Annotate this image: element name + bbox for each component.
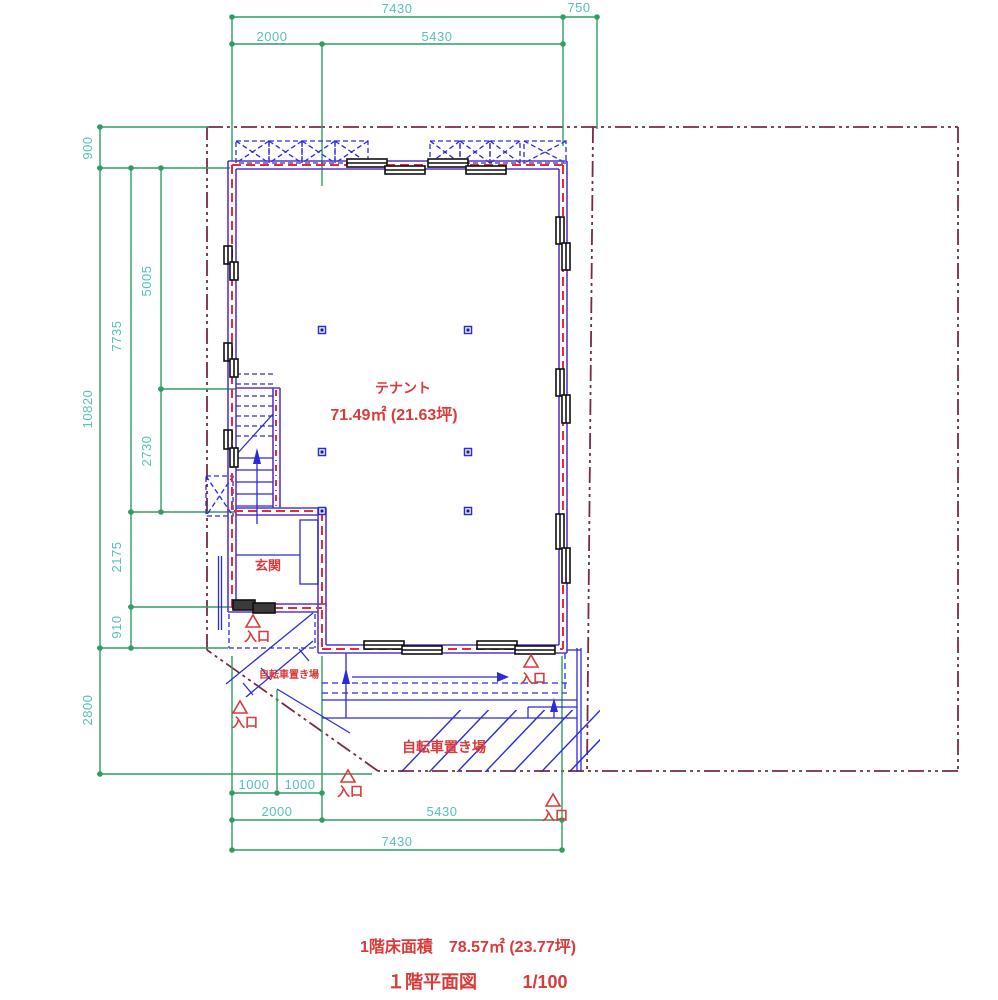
plan-title-text: １階平面図 — [387, 972, 477, 992]
dim-bottom-1000a: 1000 — [239, 777, 270, 792]
tenant-label: テナント — [375, 380, 431, 396]
bicycle-label: 自転車置き場 — [402, 739, 486, 755]
entrance-label: 入口 — [520, 671, 546, 686]
entrance-label: 入口 — [337, 784, 363, 799]
genkan-label: 玄関 — [255, 558, 281, 573]
dim-bottom-7430: 7430 — [382, 834, 413, 849]
dim-top-750: 750 — [567, 0, 590, 15]
bicycle-label-small: 自転車置き場 — [259, 668, 319, 681]
dim-bottom-1000b: 1000 — [285, 777, 316, 792]
entrance-label: 入口 — [244, 629, 270, 644]
dim-left-10820: 10820 — [80, 390, 95, 429]
floor-area-text: 1階床面積 78.57㎡ (23.77坪) — [360, 937, 576, 956]
floor-plan-page: { "drawing": { "type": "architectural-fl… — [0, 0, 998, 1000]
dim-top-5430: 5430 — [422, 29, 453, 44]
plan-scale-text: 1/100 — [522, 972, 567, 992]
dim-left-2730: 2730 — [139, 436, 154, 467]
dim-left-900: 900 — [80, 136, 95, 159]
floor-plan-svg: 7430 750 2000 5430 900 5005 7735 10820 2… — [0, 0, 998, 1000]
entrance-label: 入口 — [542, 808, 568, 823]
dim-left-2175: 2175 — [109, 542, 124, 573]
dim-left-910: 910 — [109, 615, 124, 638]
dim-bottom-5430: 5430 — [427, 804, 458, 819]
dim-top-7430: 7430 — [382, 1, 413, 16]
dim-top-2000: 2000 — [257, 29, 288, 44]
dim-left-2800: 2800 — [80, 695, 95, 726]
entrance-label: 入口 — [232, 715, 258, 730]
tenant-area-label: 71.49㎡ (21.63坪) — [330, 405, 457, 424]
dim-bottom-2000: 2000 — [262, 804, 293, 819]
dim-left-5005: 5005 — [139, 266, 154, 297]
dim-left-7735: 7735 — [109, 321, 124, 352]
